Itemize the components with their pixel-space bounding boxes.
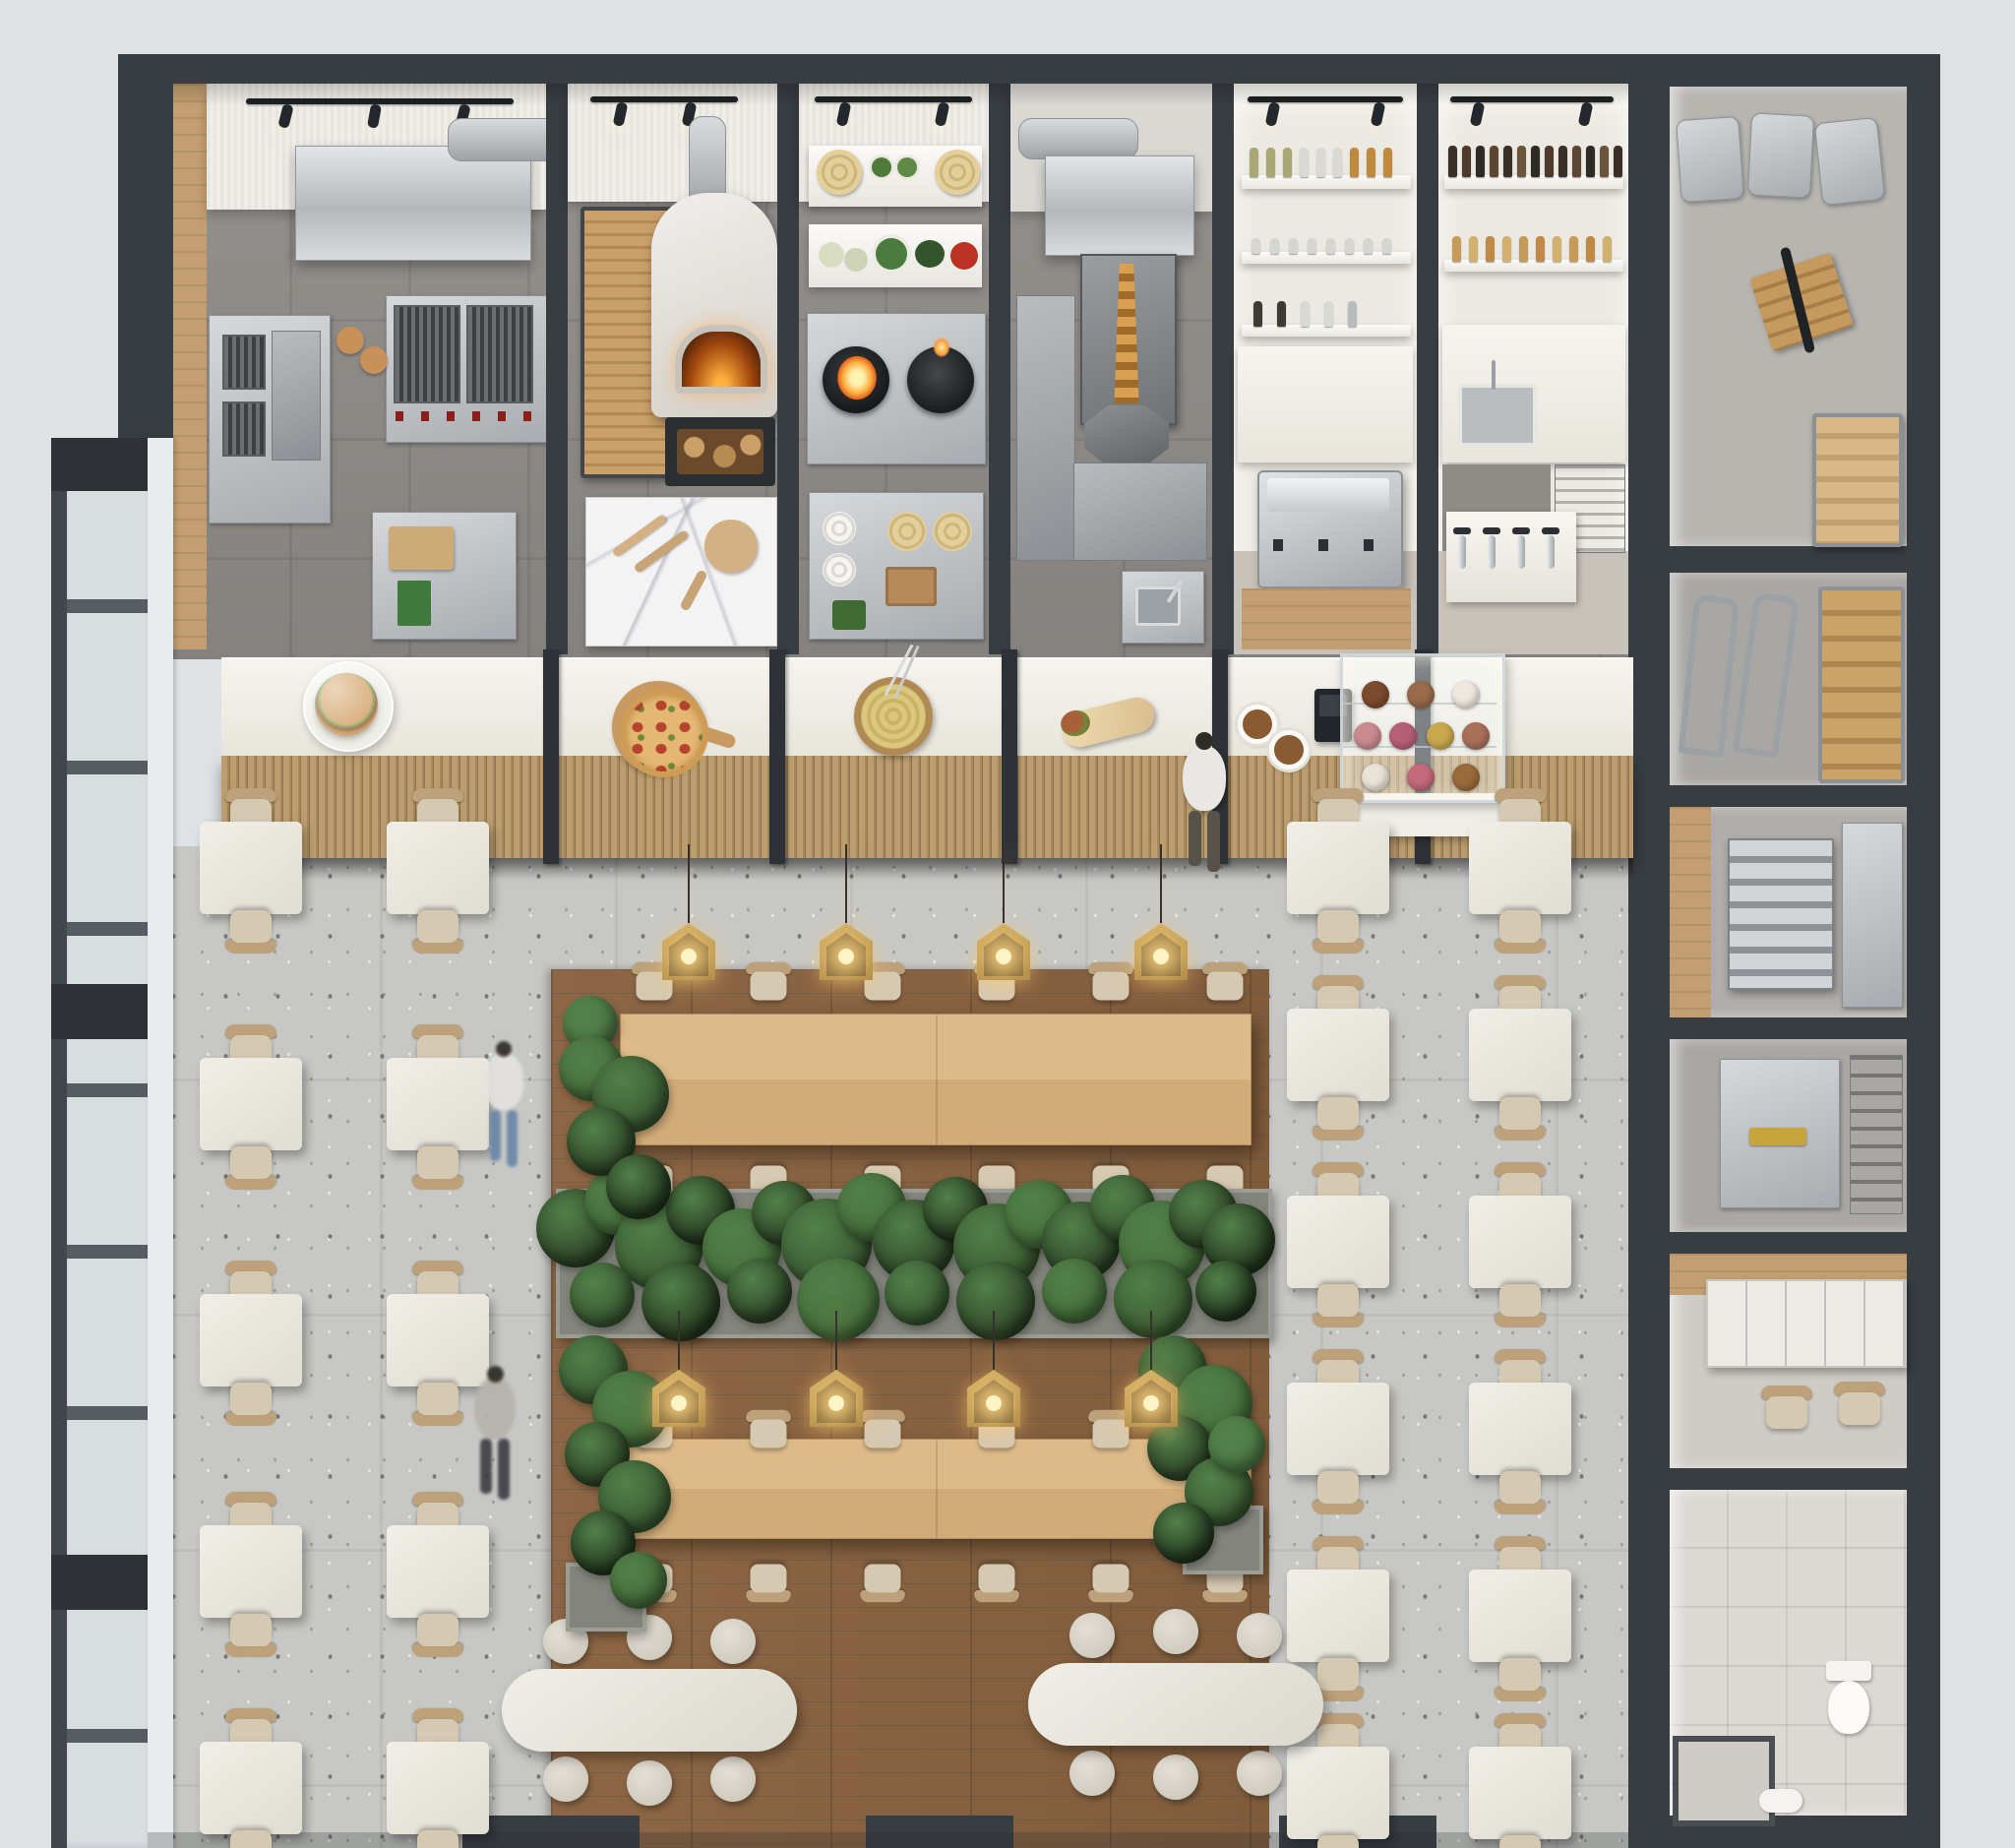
bottle-wine_shelf2 <box>1586 236 1595 262</box>
bottle-wine_shelf1 <box>1462 146 1471 177</box>
bottle-wine_shelf1 <box>1558 146 1567 177</box>
bottle-spirits_shelf1 <box>1250 148 1258 177</box>
bottle-spirits_shelf2 <box>1345 238 1354 254</box>
bottle-spirits_shelf3 <box>1253 301 1262 327</box>
bottle-wine_shelf2 <box>1486 236 1495 262</box>
bottle-spirits_shelf3 <box>1277 301 1286 327</box>
bottle-wine_shelf2 <box>1502 236 1511 262</box>
bottle-spirits_shelf1 <box>1283 148 1292 177</box>
bottle-spirits_shelf2 <box>1270 238 1279 254</box>
bottle-spirits_shelf1 <box>1367 148 1375 177</box>
bottle-wine_shelf1 <box>1490 146 1498 177</box>
bottle-spirits_shelf2 <box>1326 238 1335 254</box>
bottle-wine_shelf1 <box>1614 146 1622 177</box>
bottle-wine_shelf1 <box>1600 146 1609 177</box>
bottle-wine_shelf2 <box>1452 236 1461 262</box>
bottle-wine_shelf1 <box>1586 146 1595 177</box>
bottle-spirits_shelf3 <box>1301 301 1310 327</box>
bottle-wine_shelf2 <box>1536 236 1545 262</box>
bottle-wine_shelf2 <box>1603 236 1612 262</box>
bottle-spirits_shelf3 <box>1348 301 1357 327</box>
bottle-wine_shelf1 <box>1503 146 1512 177</box>
bottle-spirits_shelf1 <box>1300 148 1309 177</box>
bottle-spirits_shelf1 <box>1316 148 1325 177</box>
bottle-wine_shelf1 <box>1448 146 1457 177</box>
bottle-spirits_shelf2 <box>1252 238 1260 254</box>
bottle-wine_shelf1 <box>1572 146 1581 177</box>
bottle-wine_shelf2 <box>1519 236 1528 262</box>
bottle-wine_shelf1 <box>1545 146 1554 177</box>
bottle-spirits_shelf2 <box>1382 238 1391 254</box>
person-customer-at-counter <box>1177 732 1232 880</box>
bottle-wine_shelf1 <box>1476 146 1485 177</box>
person-walking-upper <box>480 1041 529 1171</box>
bottle-wine_shelf2 <box>1469 236 1478 262</box>
bottle-wine_shelf2 <box>1569 236 1578 262</box>
bottle-spirits_shelf1 <box>1333 148 1342 177</box>
bottle-spirits_shelf1 <box>1266 148 1275 177</box>
bottle-wine_shelf2 <box>1553 236 1561 262</box>
bar-bottle-layer <box>0 0 2015 1848</box>
bottle-wine_shelf1 <box>1517 146 1526 177</box>
bottle-spirits_shelf2 <box>1364 238 1373 254</box>
food-hall-render <box>0 0 2015 1848</box>
bottle-spirits_shelf3 <box>1324 301 1333 327</box>
bottle-spirits_shelf2 <box>1289 238 1298 254</box>
bottle-wine_shelf1 <box>1531 146 1540 177</box>
bottle-spirits_shelf2 <box>1308 238 1316 254</box>
bottle-spirits_shelf1 <box>1383 148 1392 177</box>
bottle-spirits_shelf1 <box>1350 148 1359 177</box>
person-walking-lower <box>470 1366 521 1504</box>
